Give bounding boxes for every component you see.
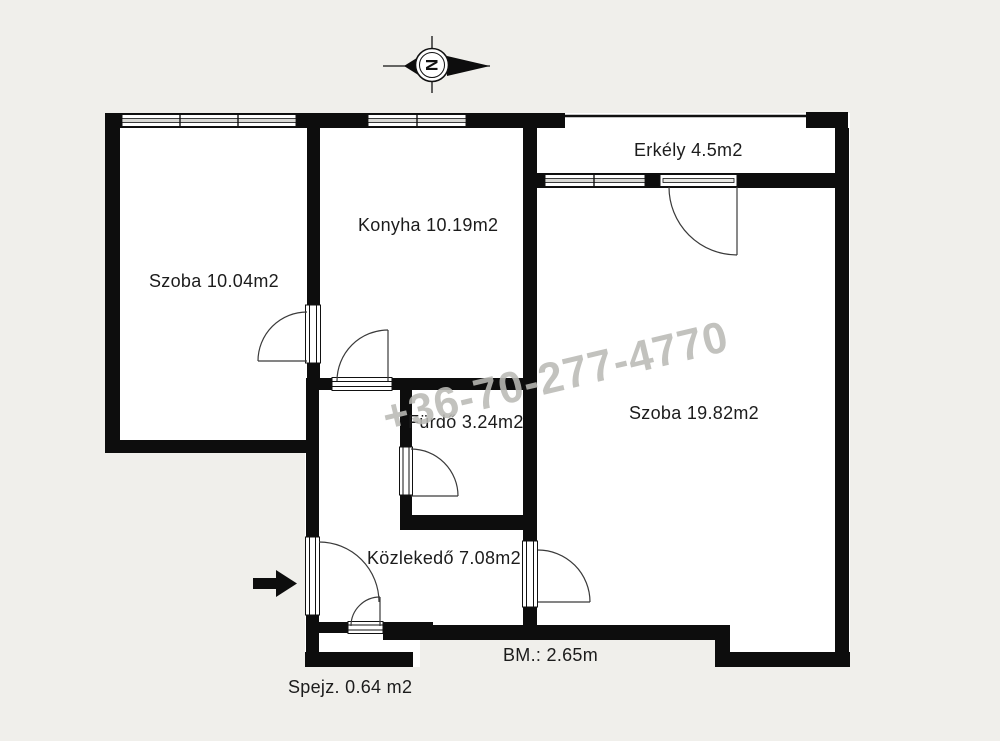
compass-north-icon: N	[383, 36, 490, 93]
room-label-furdo: Fürdő 3.24m2	[408, 413, 524, 431]
room-label-kozlekedo: Közlekedő 7.08m2	[367, 549, 521, 567]
room-label-szoba-large: Szoba 19.82m2	[629, 404, 759, 422]
compass-letter: N	[422, 59, 441, 71]
room-label-konyha: Konyha 10.19m2	[358, 216, 498, 234]
balcony-door-panel-icon	[660, 175, 737, 187]
floor-plan-drawing: N	[0, 0, 1000, 741]
entrance-arrow-icon	[253, 570, 297, 597]
room-label-spejz: Spejz. 0.64 m2	[288, 678, 412, 696]
room-label-szoba-small: Szoba 10.04m2	[149, 272, 279, 290]
floor-plan: N Erkély 4.5m2 Konyha 10.19m2 Szoba 10.0…	[0, 0, 1000, 741]
room-label-erkely: Erkély 4.5m2	[634, 141, 743, 159]
ceiling-height-label: BM.: 2.65m	[503, 646, 598, 664]
